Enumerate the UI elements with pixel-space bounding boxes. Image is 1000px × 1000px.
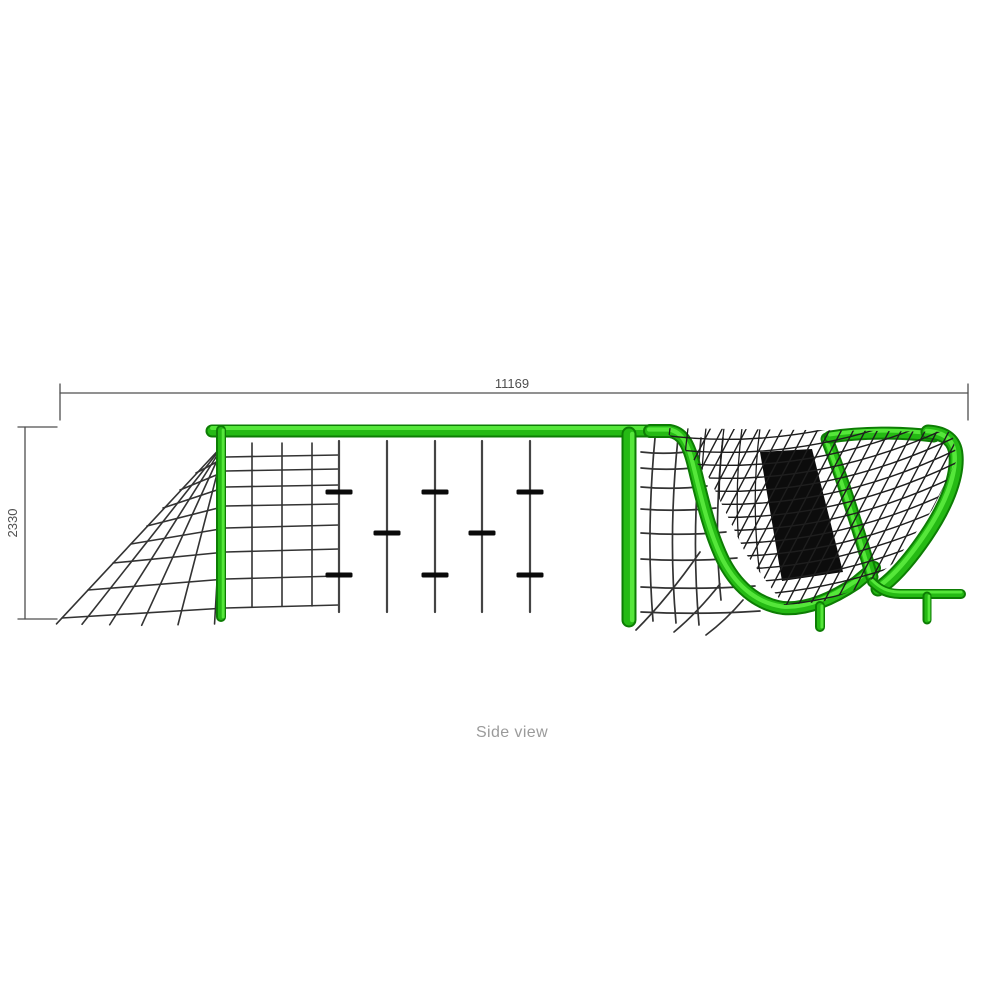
rope-clamp	[517, 573, 544, 578]
fan-net-rung	[147, 504, 339, 526]
stray-net-rope	[706, 600, 743, 635]
fan-net-rope	[110, 443, 225, 625]
width-dimension-label: 11169	[495, 376, 529, 391]
technical-drawing-page: 11169 2330 Side view	[0, 0, 1000, 1000]
rope-clamp	[374, 531, 401, 536]
rope-clamp	[517, 490, 544, 495]
sag-net-rung	[641, 611, 760, 613]
hatch-rope	[852, 414, 970, 640]
height-dimension-label: 2330	[5, 509, 20, 538]
fan-net-rope	[142, 443, 225, 625]
hatch-rope	[636, 370, 960, 426]
hatch-rope	[636, 591, 960, 647]
fan-net-rung	[88, 576, 339, 590]
hatch-rope	[719, 428, 730, 612]
fan-net-rope	[82, 443, 225, 624]
sag-net-strand	[650, 438, 655, 621]
rope-clamp	[469, 531, 496, 536]
rope-clamp	[326, 573, 353, 578]
hatch-rope	[972, 414, 1000, 640]
rope-clamp	[422, 573, 449, 578]
hatch-rope	[984, 414, 1000, 640]
sag-net-strand	[672, 438, 678, 623]
fan-net-rung	[62, 605, 339, 618]
left-climbing-net	[57, 443, 339, 625]
hatch-rope	[665, 428, 676, 612]
rope-clamp	[422, 490, 449, 495]
side-view-drawing: 11169 2330 Side view	[0, 0, 1000, 1000]
hanging-climbing-ropes	[326, 441, 544, 612]
hatch-rope	[936, 414, 1000, 640]
rope-clamp	[326, 490, 353, 495]
view-caption: Side view	[476, 724, 548, 741]
hatch-rope	[996, 414, 1000, 640]
hatch-rope	[960, 414, 1000, 640]
